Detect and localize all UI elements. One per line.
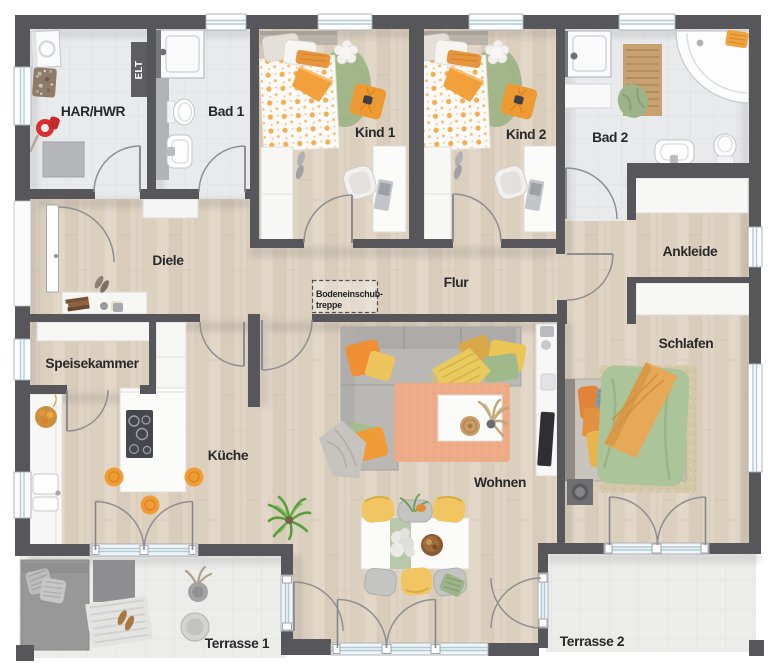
svg-text:Kind 1: Kind 1 xyxy=(355,125,396,140)
svg-text:Bad 1: Bad 1 xyxy=(208,104,244,119)
svg-text:HAR/HWR: HAR/HWR xyxy=(61,104,126,119)
svg-text:Schlafen: Schlafen xyxy=(659,336,714,351)
svg-text:treppe: treppe xyxy=(316,300,342,310)
svg-text:Diele: Diele xyxy=(152,253,184,268)
svg-text:Ankleide: Ankleide xyxy=(663,244,718,259)
svg-text:Kind 2: Kind 2 xyxy=(506,127,547,142)
svg-text:ELT: ELT xyxy=(134,61,145,80)
svg-text:Speisekammer: Speisekammer xyxy=(45,356,139,371)
svg-text:Bodeneinschub-: Bodeneinschub- xyxy=(316,289,383,299)
svg-text:Bad 2: Bad 2 xyxy=(592,130,628,145)
svg-text:Terrasse 2: Terrasse 2 xyxy=(560,634,625,649)
svg-text:Wohnen: Wohnen xyxy=(474,475,526,490)
svg-text:Terrasse 1: Terrasse 1 xyxy=(205,636,270,651)
svg-text:Küche: Küche xyxy=(208,448,249,463)
svg-text:Flur: Flur xyxy=(444,275,470,290)
